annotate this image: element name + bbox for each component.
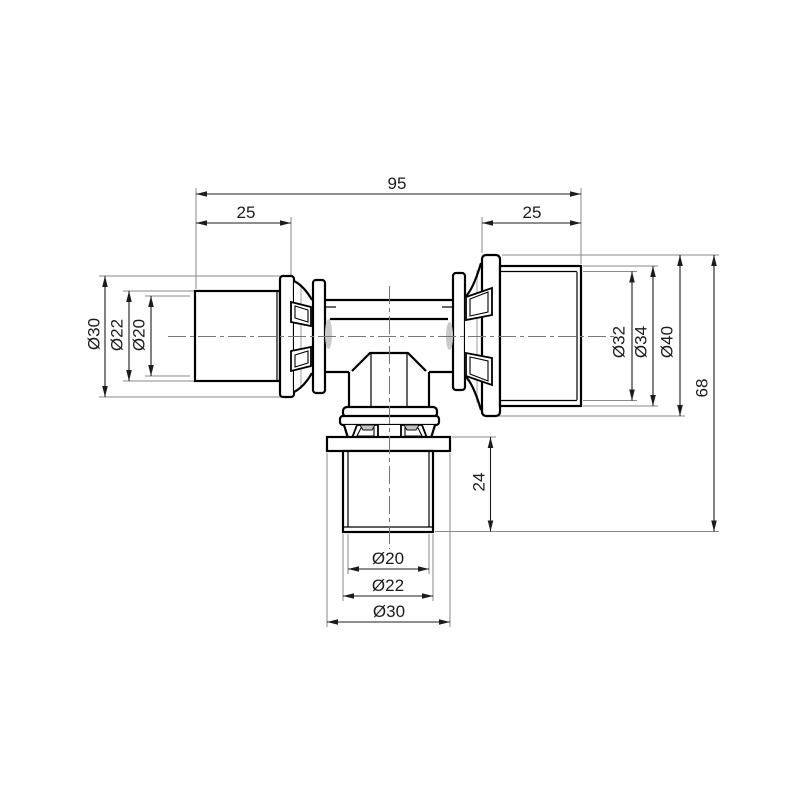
branch-press-connection [327, 407, 450, 532]
dim-label-overall-height: 68 [692, 379, 711, 398]
left-bore-opening [325, 319, 332, 349]
dim-label-branch-bore-dia: Ø20 [372, 549, 404, 568]
dim-label-branch-depth: 24 [469, 473, 488, 492]
fitting-body [195, 255, 581, 532]
right-collar [482, 255, 500, 416]
dim-label-right-sleeve-dia: Ø34 [631, 326, 650, 358]
dim-label-right-bore-dia: Ø32 [609, 326, 628, 358]
dim-label-left-sleeve-dia: Ø22 [107, 319, 126, 351]
dim-label-branch-collar-dia: Ø30 [373, 602, 405, 621]
drawing-canvas: 95 25 25 Ø30 Ø22 Ø20 Ø32 Ø34 Ø40 68 24 Ø… [0, 0, 800, 800]
branch-left-jaw-tooth [360, 425, 375, 430]
dim-label-right-collar-dia: Ø40 [657, 326, 676, 358]
right-press-connection [453, 255, 581, 416]
branch-right-jaw-tooth [404, 425, 419, 430]
dim-label-left-bore-dia: Ø20 [129, 319, 148, 351]
dim-label-left-collar-dia: Ø30 [84, 318, 103, 350]
dim-label-overall-length: 95 [388, 174, 407, 193]
dim-label-right-depth: 25 [523, 203, 542, 222]
dim-label-branch-pipe-dia: Ø22 [372, 576, 404, 595]
branch-pipe [343, 451, 433, 532]
right-body-flange [453, 273, 465, 390]
tee-fitting-technical-drawing: 95 25 25 Ø30 Ø22 Ø20 Ø32 Ø34 Ø40 68 24 Ø… [0, 0, 800, 800]
branch-flange [327, 437, 450, 451]
dim-label-left-depth: 25 [237, 203, 256, 222]
